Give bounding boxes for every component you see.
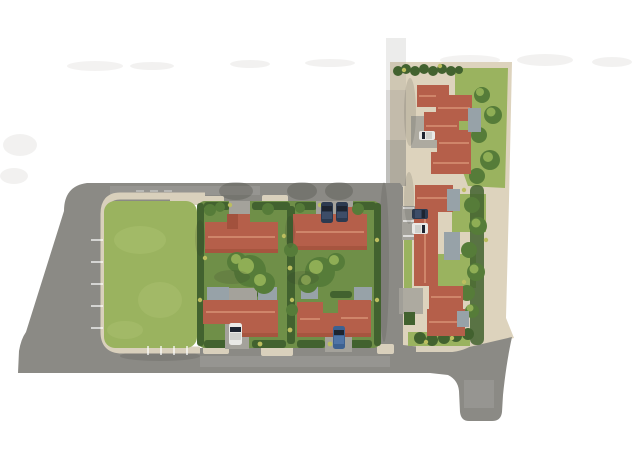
car-blue-south [333,326,345,349]
car-white-south [229,323,242,345]
strip-roof-3 [429,286,463,309]
car-navy-2 [336,202,348,222]
site-plan-canvas [0,0,640,470]
hedge-square [404,312,415,325]
car-white-cluster [419,131,435,140]
car-white-bay [412,223,428,234]
cluster-roof-5 [431,152,471,174]
context-shadows [0,54,632,184]
access-lane-north [386,38,406,186]
car-navy-1 [321,202,333,223]
central-lawn [104,201,197,348]
car-navy-bay [412,209,428,219]
site-plan-svg [0,0,640,470]
